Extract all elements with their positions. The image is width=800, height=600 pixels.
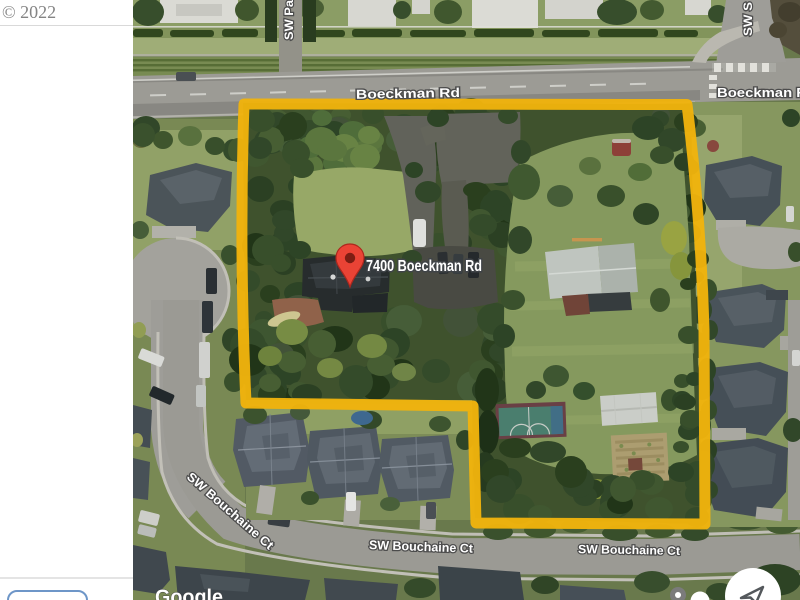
svg-text:Boeckman R: Boeckman R [717, 85, 800, 100]
svg-text:Google: Google [155, 586, 223, 600]
svg-text:SW Pa: SW Pa [284, 0, 296, 40]
svg-text:SW Bouchaine Ct: SW Bouchaine Ct [578, 542, 680, 558]
svg-text:7400 Boeckman Rd: 7400 Boeckman Rd [366, 258, 482, 275]
svg-text:Boeckman Rd: Boeckman Rd [356, 85, 460, 102]
svg-text:SW S: SW S [743, 2, 755, 36]
